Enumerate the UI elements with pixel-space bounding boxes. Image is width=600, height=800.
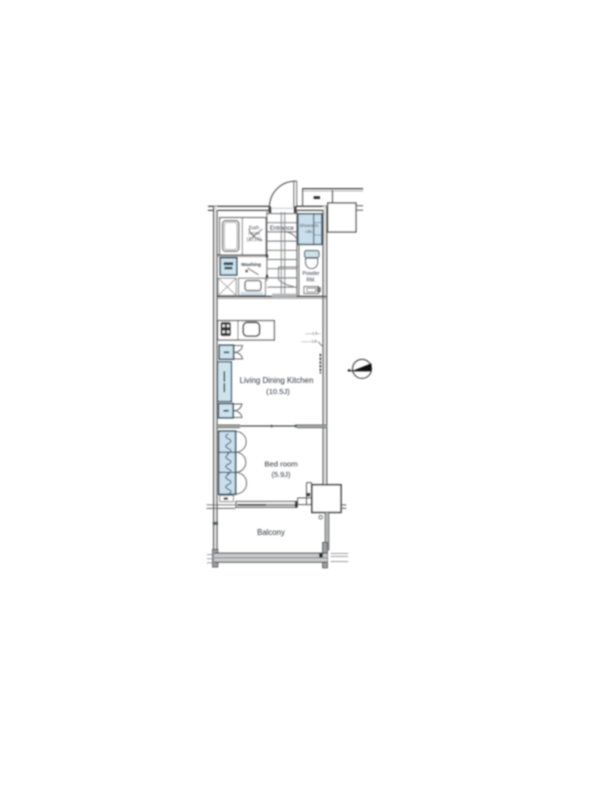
- svg-text:Living Dining Kitchen: Living Dining Kitchen: [240, 376, 314, 385]
- svg-text:(5.9J): (5.9J): [272, 470, 291, 479]
- svg-text:-clo.: -clo.: [304, 229, 313, 235]
- svg-text:Balcony: Balcony: [257, 528, 285, 537]
- svg-text:——1,5—: ——1,5—: [306, 332, 321, 336]
- svg-text:(10.5J): (10.5J): [266, 387, 290, 396]
- svg-text:Powder: Powder: [303, 271, 320, 277]
- svg-text:Shoes-in: Shoes-in: [300, 223, 319, 229]
- svg-text:Bed room: Bed room: [264, 459, 297, 468]
- svg-text:———1,8—: ———1,8—: [302, 340, 321, 344]
- svg-text:Washing: Washing: [241, 262, 261, 268]
- svg-text:Entrance: Entrance: [270, 226, 295, 232]
- svg-text:RM.: RM.: [306, 277, 315, 283]
